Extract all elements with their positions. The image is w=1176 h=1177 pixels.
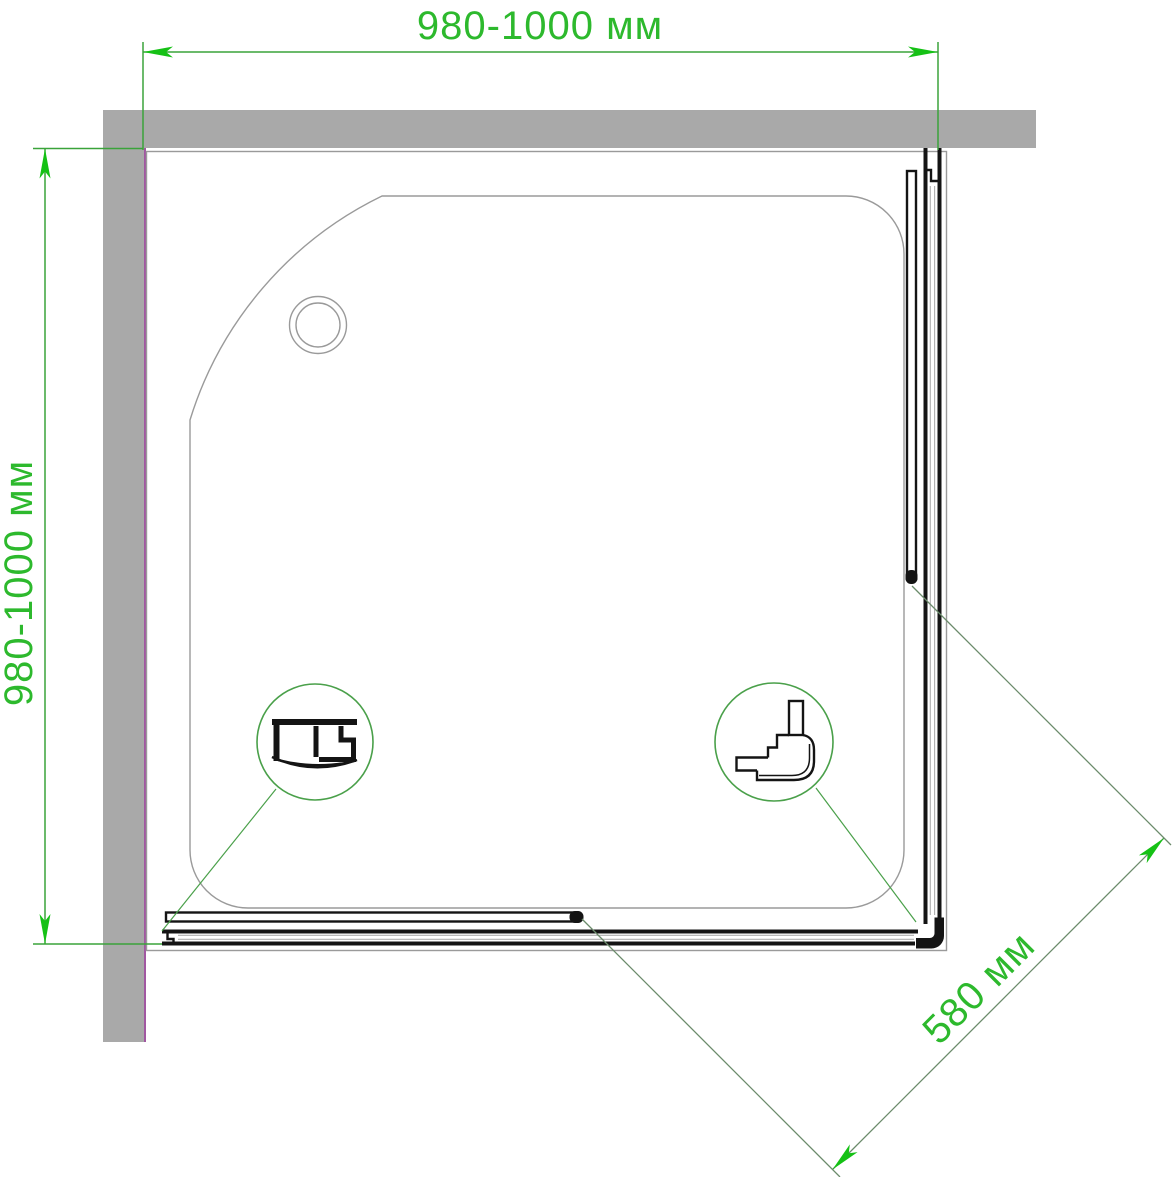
right-sliding-door-panel [907, 171, 916, 579]
drain-outer-circle [290, 297, 347, 354]
right-door-end-cap [906, 570, 918, 584]
enclosure-plan-drawing [0, 0, 1176, 1177]
bottom-sliding-door-panel [166, 913, 578, 922]
wall-profile-detail [162, 684, 373, 931]
shower-enclosure-plan: 980-1000 мм 980-1000 мм 580 мм [0, 0, 1176, 1177]
enclosure-outer-frame [147, 152, 947, 951]
corner-profile-section [737, 701, 815, 780]
corner-profile-detail [715, 683, 916, 922]
dimension-entry-ext-2 [912, 586, 1171, 845]
dimension-entry [582, 586, 1171, 1177]
detail-circle-right [715, 683, 833, 801]
corner-post [916, 918, 944, 949]
wall-top [103, 110, 1036, 148]
bottom-door-end-cap [570, 911, 584, 923]
right-wall-bracket [926, 170, 940, 181]
dimension-width-label: 980-1000 мм [417, 6, 663, 46]
wall-profile-section [272, 719, 357, 767]
dimension-entry-ext-1 [582, 919, 840, 1177]
bottom-door-assembly [162, 911, 918, 944]
tray-outline [190, 196, 904, 908]
right-door-assembly [906, 148, 940, 924]
detail-leader-left [162, 789, 276, 931]
wall-left [103, 110, 144, 1042]
detail-leader-right [816, 788, 916, 922]
drain-inner-circle [296, 303, 340, 347]
walls [103, 110, 1036, 1042]
dimension-depth-label: 980-1000 мм [0, 460, 39, 706]
shower-tray [190, 196, 904, 908]
dimension-entry-line [833, 838, 1165, 1170]
